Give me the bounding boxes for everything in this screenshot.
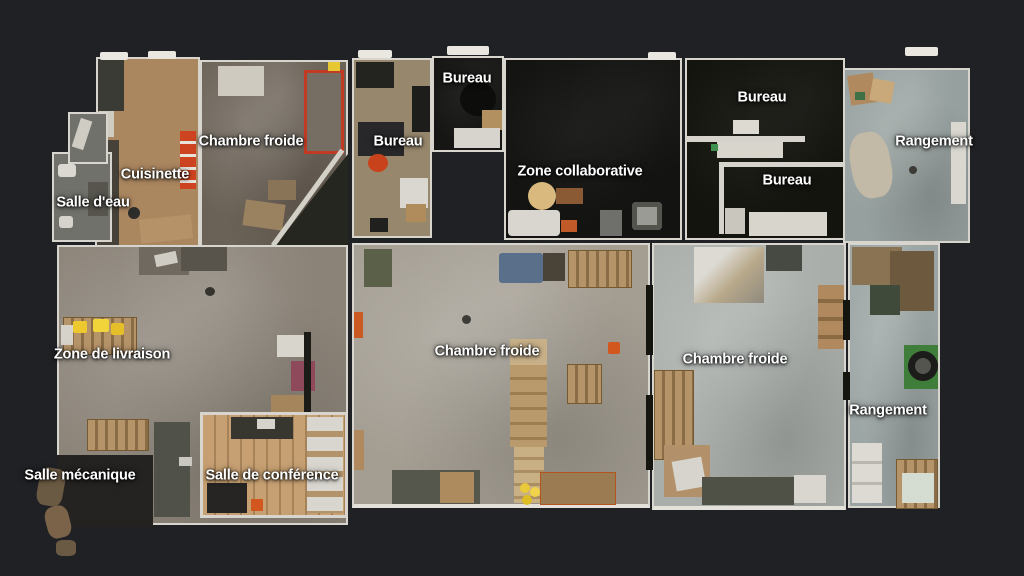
cardboard: [242, 199, 285, 230]
box: [902, 473, 934, 503]
chair: [632, 202, 662, 230]
dark-spot: [128, 207, 140, 219]
yellow-jerrycan: [111, 323, 124, 335]
wall-dark: [304, 332, 311, 420]
box: [277, 335, 307, 357]
white-table: [218, 66, 264, 96]
dark-item: [370, 218, 388, 232]
white-clutter: [694, 247, 764, 303]
floor-mat: [702, 477, 794, 505]
dark-spot: [205, 287, 215, 296]
room-bureau-nord: [352, 58, 432, 238]
workbench-debris: [181, 247, 227, 271]
pallet-stack: [568, 250, 632, 288]
dark-spot: [462, 315, 471, 324]
floor-mat: [154, 422, 190, 517]
white-item: [179, 457, 192, 466]
room-rangement-sud: [848, 243, 940, 508]
room-chambre-froide-2: [352, 243, 650, 508]
orange-crate: [561, 220, 577, 232]
desk: [358, 122, 404, 156]
cabinet: [600, 210, 622, 236]
crate: [540, 472, 616, 505]
box: [406, 204, 426, 222]
mattress: [508, 210, 560, 236]
magenta-item: [291, 361, 315, 391]
floorplan-canvas[interactable]: BureauBureauChambre froideBureauRangemen…: [0, 0, 1024, 576]
box: [794, 475, 826, 503]
scan-debris: [56, 540, 76, 556]
orange-bin: [251, 499, 263, 511]
crate-stack: [510, 339, 547, 365]
white-item: [257, 419, 275, 429]
box: [725, 208, 745, 234]
room-bureau-petit: [432, 56, 504, 152]
wall-dark: [646, 395, 653, 470]
green-item: [855, 92, 865, 100]
cabinet: [98, 59, 124, 111]
yellow-jerrycan: [93, 319, 109, 332]
round-table: [528, 182, 556, 210]
cardboard: [139, 214, 193, 243]
box: [869, 78, 894, 103]
dark-clutter: [870, 285, 900, 315]
box-stack: [818, 285, 844, 349]
table: [207, 483, 247, 513]
pallet: [567, 364, 602, 404]
door-tab: [447, 46, 489, 55]
white-desk: [717, 142, 783, 158]
wall: [719, 162, 845, 167]
dark-clutter: [766, 245, 802, 271]
wall: [719, 162, 724, 234]
orange-cone: [608, 342, 620, 354]
white-item: [61, 325, 73, 345]
room-chambre-froide-3: [652, 243, 846, 510]
room-chambre-froide-1: [200, 60, 348, 248]
blue-tarp: [499, 253, 543, 283]
red-rack: [304, 70, 344, 154]
white-streak: [72, 118, 93, 150]
scan-gap: [275, 154, 348, 246]
orange-chair: [368, 154, 388, 172]
door-tab: [148, 51, 176, 59]
crate-stack: [510, 365, 547, 447]
dark-spot: [909, 166, 917, 174]
green-item: [711, 144, 718, 151]
box: [354, 430, 364, 470]
room-salle-de-conference: [200, 412, 348, 518]
green-clutter: [364, 249, 392, 287]
wall-dark: [843, 300, 850, 340]
yellow-item: [328, 62, 340, 71]
room-salle-deau: [52, 152, 112, 242]
yellow-items: [520, 483, 530, 493]
pallet-stack: [87, 419, 149, 451]
dark-pallet: [543, 253, 565, 281]
yellow-jerrycan: [73, 321, 87, 333]
cardboard: [268, 180, 296, 200]
wall-dark: [646, 285, 653, 355]
box: [482, 110, 502, 130]
beige-patch: [846, 129, 897, 201]
room-salle-mecanique: [57, 455, 153, 527]
white-item: [733, 120, 759, 134]
room-zone-collaborative: [504, 58, 682, 240]
wall-dark: [843, 372, 850, 400]
couch: [454, 128, 500, 148]
toilet: [59, 216, 73, 228]
shelf: [307, 417, 343, 513]
desk: [356, 62, 394, 88]
cardboard: [440, 472, 474, 503]
room-salle-deau-annex: [68, 112, 108, 164]
crate: [556, 188, 583, 204]
tire: [908, 351, 938, 381]
door-tab: [905, 47, 938, 56]
room-bureaux-est: [685, 58, 845, 240]
sink: [58, 164, 76, 177]
door-tab: [648, 52, 676, 60]
white-counter: [749, 212, 827, 236]
door-tab: [358, 50, 392, 58]
room-rangement-nord: [843, 68, 970, 243]
door-tab: [100, 52, 128, 60]
dark-patch: [88, 182, 108, 216]
orange-item: [354, 312, 363, 338]
white-boxes: [852, 443, 882, 503]
shelf: [412, 86, 430, 132]
shelf: [951, 122, 966, 204]
orange-crate-shelf: [180, 131, 196, 189]
